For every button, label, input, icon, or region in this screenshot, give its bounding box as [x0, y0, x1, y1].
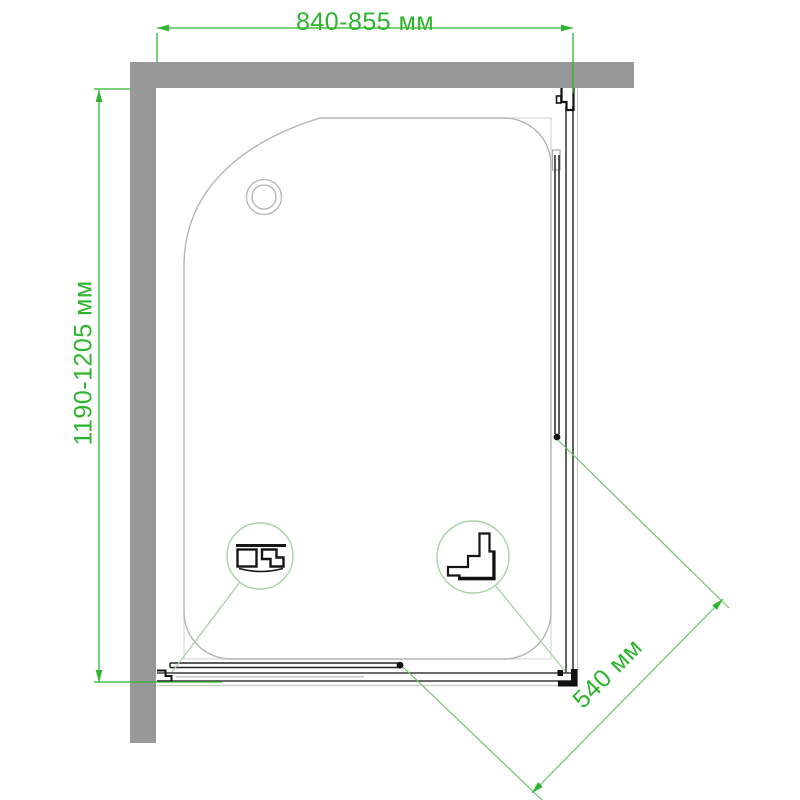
drain-icon — [247, 180, 282, 215]
left-wall — [130, 88, 156, 743]
dimension-depth — [94, 89, 222, 682]
detail-callout-2 — [437, 521, 565, 671]
arrowhead-top — [96, 90, 103, 102]
technical-drawing-canvas: 840-855 мм 1190-1205 мм 540 мм — [0, 0, 800, 800]
door-handle-right — [554, 434, 561, 441]
door-handle-bottom — [397, 662, 404, 669]
right-sliding-door — [553, 150, 561, 440]
extension-line — [403, 667, 542, 800]
corner-connector-tab — [558, 670, 564, 676]
wall-profile-bottom-left — [157, 671, 172, 682]
arrowhead-right — [561, 25, 573, 32]
leader-line — [495, 585, 565, 671]
wall-profile-top-right — [562, 88, 574, 110]
arrowhead-left — [157, 25, 169, 32]
drawing-svg — [0, 0, 800, 800]
bottom-rail — [157, 669, 578, 687]
top-wall — [130, 62, 634, 88]
width-dimension-label: 840-855 мм — [296, 10, 434, 35]
arrowhead-bottom — [96, 670, 103, 682]
dimension-line — [532, 599, 723, 793]
detail-callout-1 — [172, 523, 293, 672]
depth-dimension-label: 1190-1205 мм — [72, 280, 97, 445]
bottom-sliding-door — [170, 662, 403, 669]
extension-line — [558, 440, 729, 608]
wall-profile-clip — [557, 96, 562, 103]
